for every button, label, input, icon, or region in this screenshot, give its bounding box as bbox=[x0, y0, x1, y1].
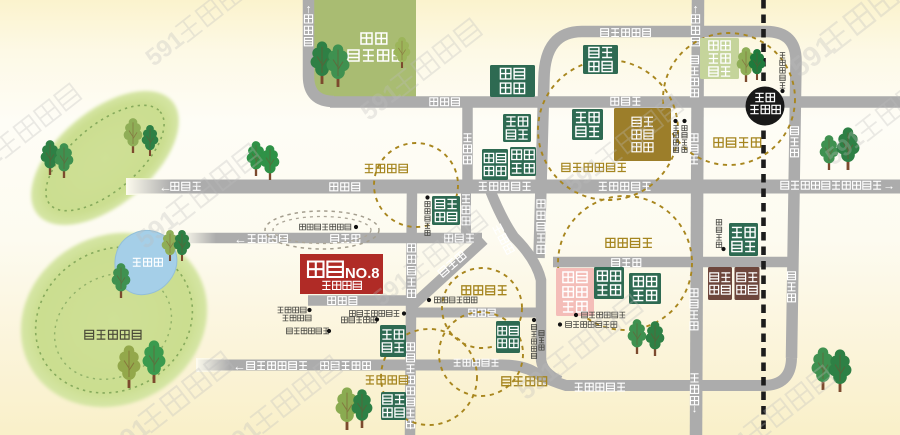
svg-text:↓: ↓ bbox=[692, 403, 698, 415]
svg-text:↑: ↑ bbox=[305, 2, 311, 16]
svg-text:←: ← bbox=[233, 359, 246, 374]
svg-text:NO.8: NO.8 bbox=[345, 266, 380, 282]
svg-text:→: → bbox=[883, 179, 895, 193]
svg-text:←: ← bbox=[234, 232, 247, 247]
svg-text:↑: ↑ bbox=[692, 2, 698, 16]
